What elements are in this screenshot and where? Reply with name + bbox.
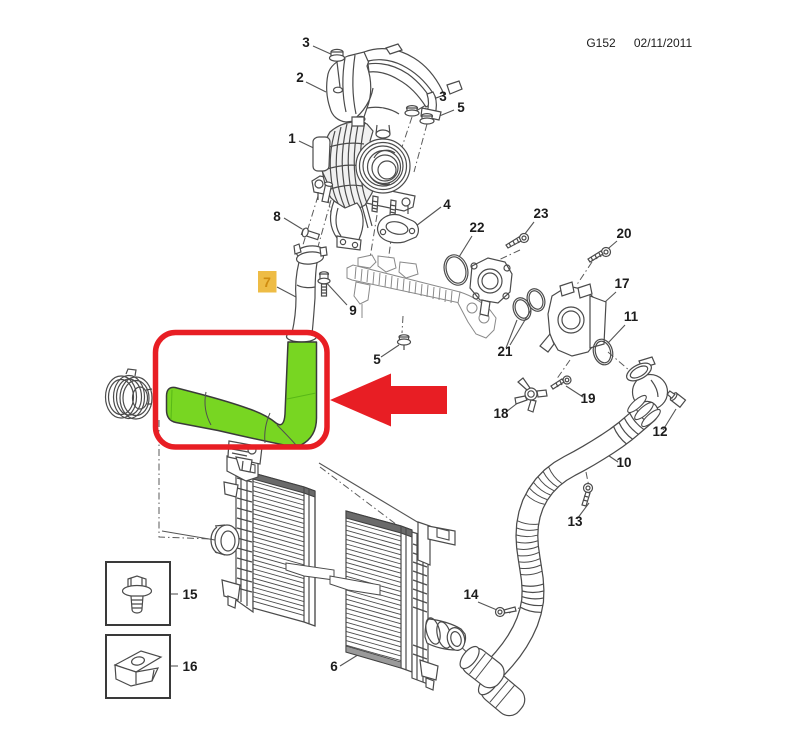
svg-text:20: 20 (616, 226, 631, 241)
svg-text:4: 4 (443, 197, 451, 212)
svg-text:8: 8 (273, 209, 281, 224)
svg-text:17: 17 (614, 276, 629, 291)
svg-text:19: 19 (580, 391, 595, 406)
svg-text:G152: G152 (586, 36, 616, 50)
svg-text:1: 1 (288, 131, 296, 146)
svg-text:22: 22 (469, 220, 484, 235)
svg-text:2: 2 (296, 70, 304, 85)
svg-text:02/11/2011: 02/11/2011 (634, 36, 693, 50)
svg-text:21: 21 (497, 344, 513, 359)
svg-text:18: 18 (493, 406, 509, 421)
svg-text:23: 23 (533, 206, 549, 221)
svg-text:7: 7 (263, 274, 271, 290)
svg-text:12: 12 (652, 424, 667, 439)
svg-text:11: 11 (624, 309, 639, 324)
svg-text:3: 3 (439, 89, 447, 104)
svg-text:14: 14 (463, 587, 479, 602)
svg-text:10: 10 (616, 455, 631, 470)
svg-text:9: 9 (349, 303, 357, 318)
svg-text:13: 13 (567, 514, 583, 529)
svg-text:5: 5 (457, 100, 465, 115)
svg-text:15: 15 (182, 587, 198, 602)
svg-text:16: 16 (182, 659, 198, 674)
svg-text:6: 6 (330, 659, 338, 674)
svg-text:5: 5 (373, 352, 381, 367)
svg-text:3: 3 (302, 35, 310, 50)
